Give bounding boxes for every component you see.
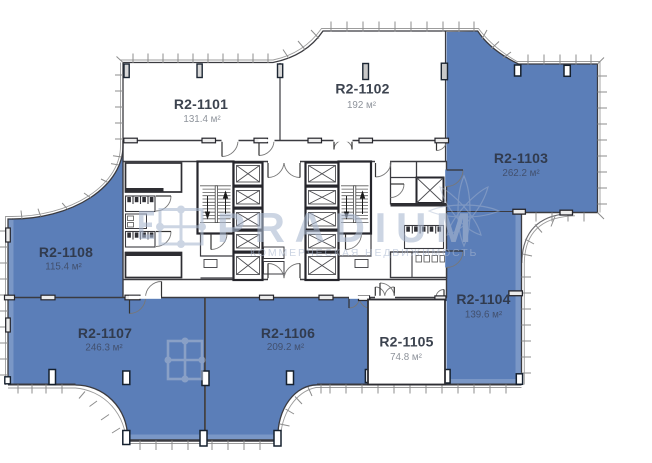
- svg-text:115.4 м²: 115.4 м²: [45, 262, 82, 273]
- svg-text:131.4 м²: 131.4 м²: [183, 114, 221, 125]
- svg-text:R2-1102: R2-1102: [335, 81, 389, 97]
- svg-text:R2-1104: R2-1104: [456, 291, 510, 307]
- svg-text:R2-1103: R2-1103: [494, 150, 548, 166]
- svg-text:R2-1105: R2-1105: [379, 334, 433, 350]
- svg-text:192 м²: 192 м²: [347, 100, 377, 111]
- svg-text:R2-1106: R2-1106: [261, 325, 315, 341]
- svg-text:R2-1108: R2-1108: [39, 244, 93, 260]
- svg-text:R2-1101: R2-1101: [174, 96, 228, 112]
- svg-text:209.2 м²: 209.2 м²: [267, 342, 305, 353]
- svg-text:139.6 м²: 139.6 м²: [465, 310, 503, 321]
- svg-text:262.2 м²: 262.2 м²: [502, 168, 540, 179]
- svg-text:КОММЕРЧЕСКАЯ НЕДВИЖИМОСТЬ: КОММЕРЧЕСКАЯ НЕДВИЖИМОСТЬ: [250, 247, 478, 259]
- svg-text:R2-1107: R2-1107: [78, 325, 132, 341]
- svg-text:74.8 м²: 74.8 м²: [390, 352, 423, 363]
- svg-text:246.3 м²: 246.3 м²: [85, 343, 123, 354]
